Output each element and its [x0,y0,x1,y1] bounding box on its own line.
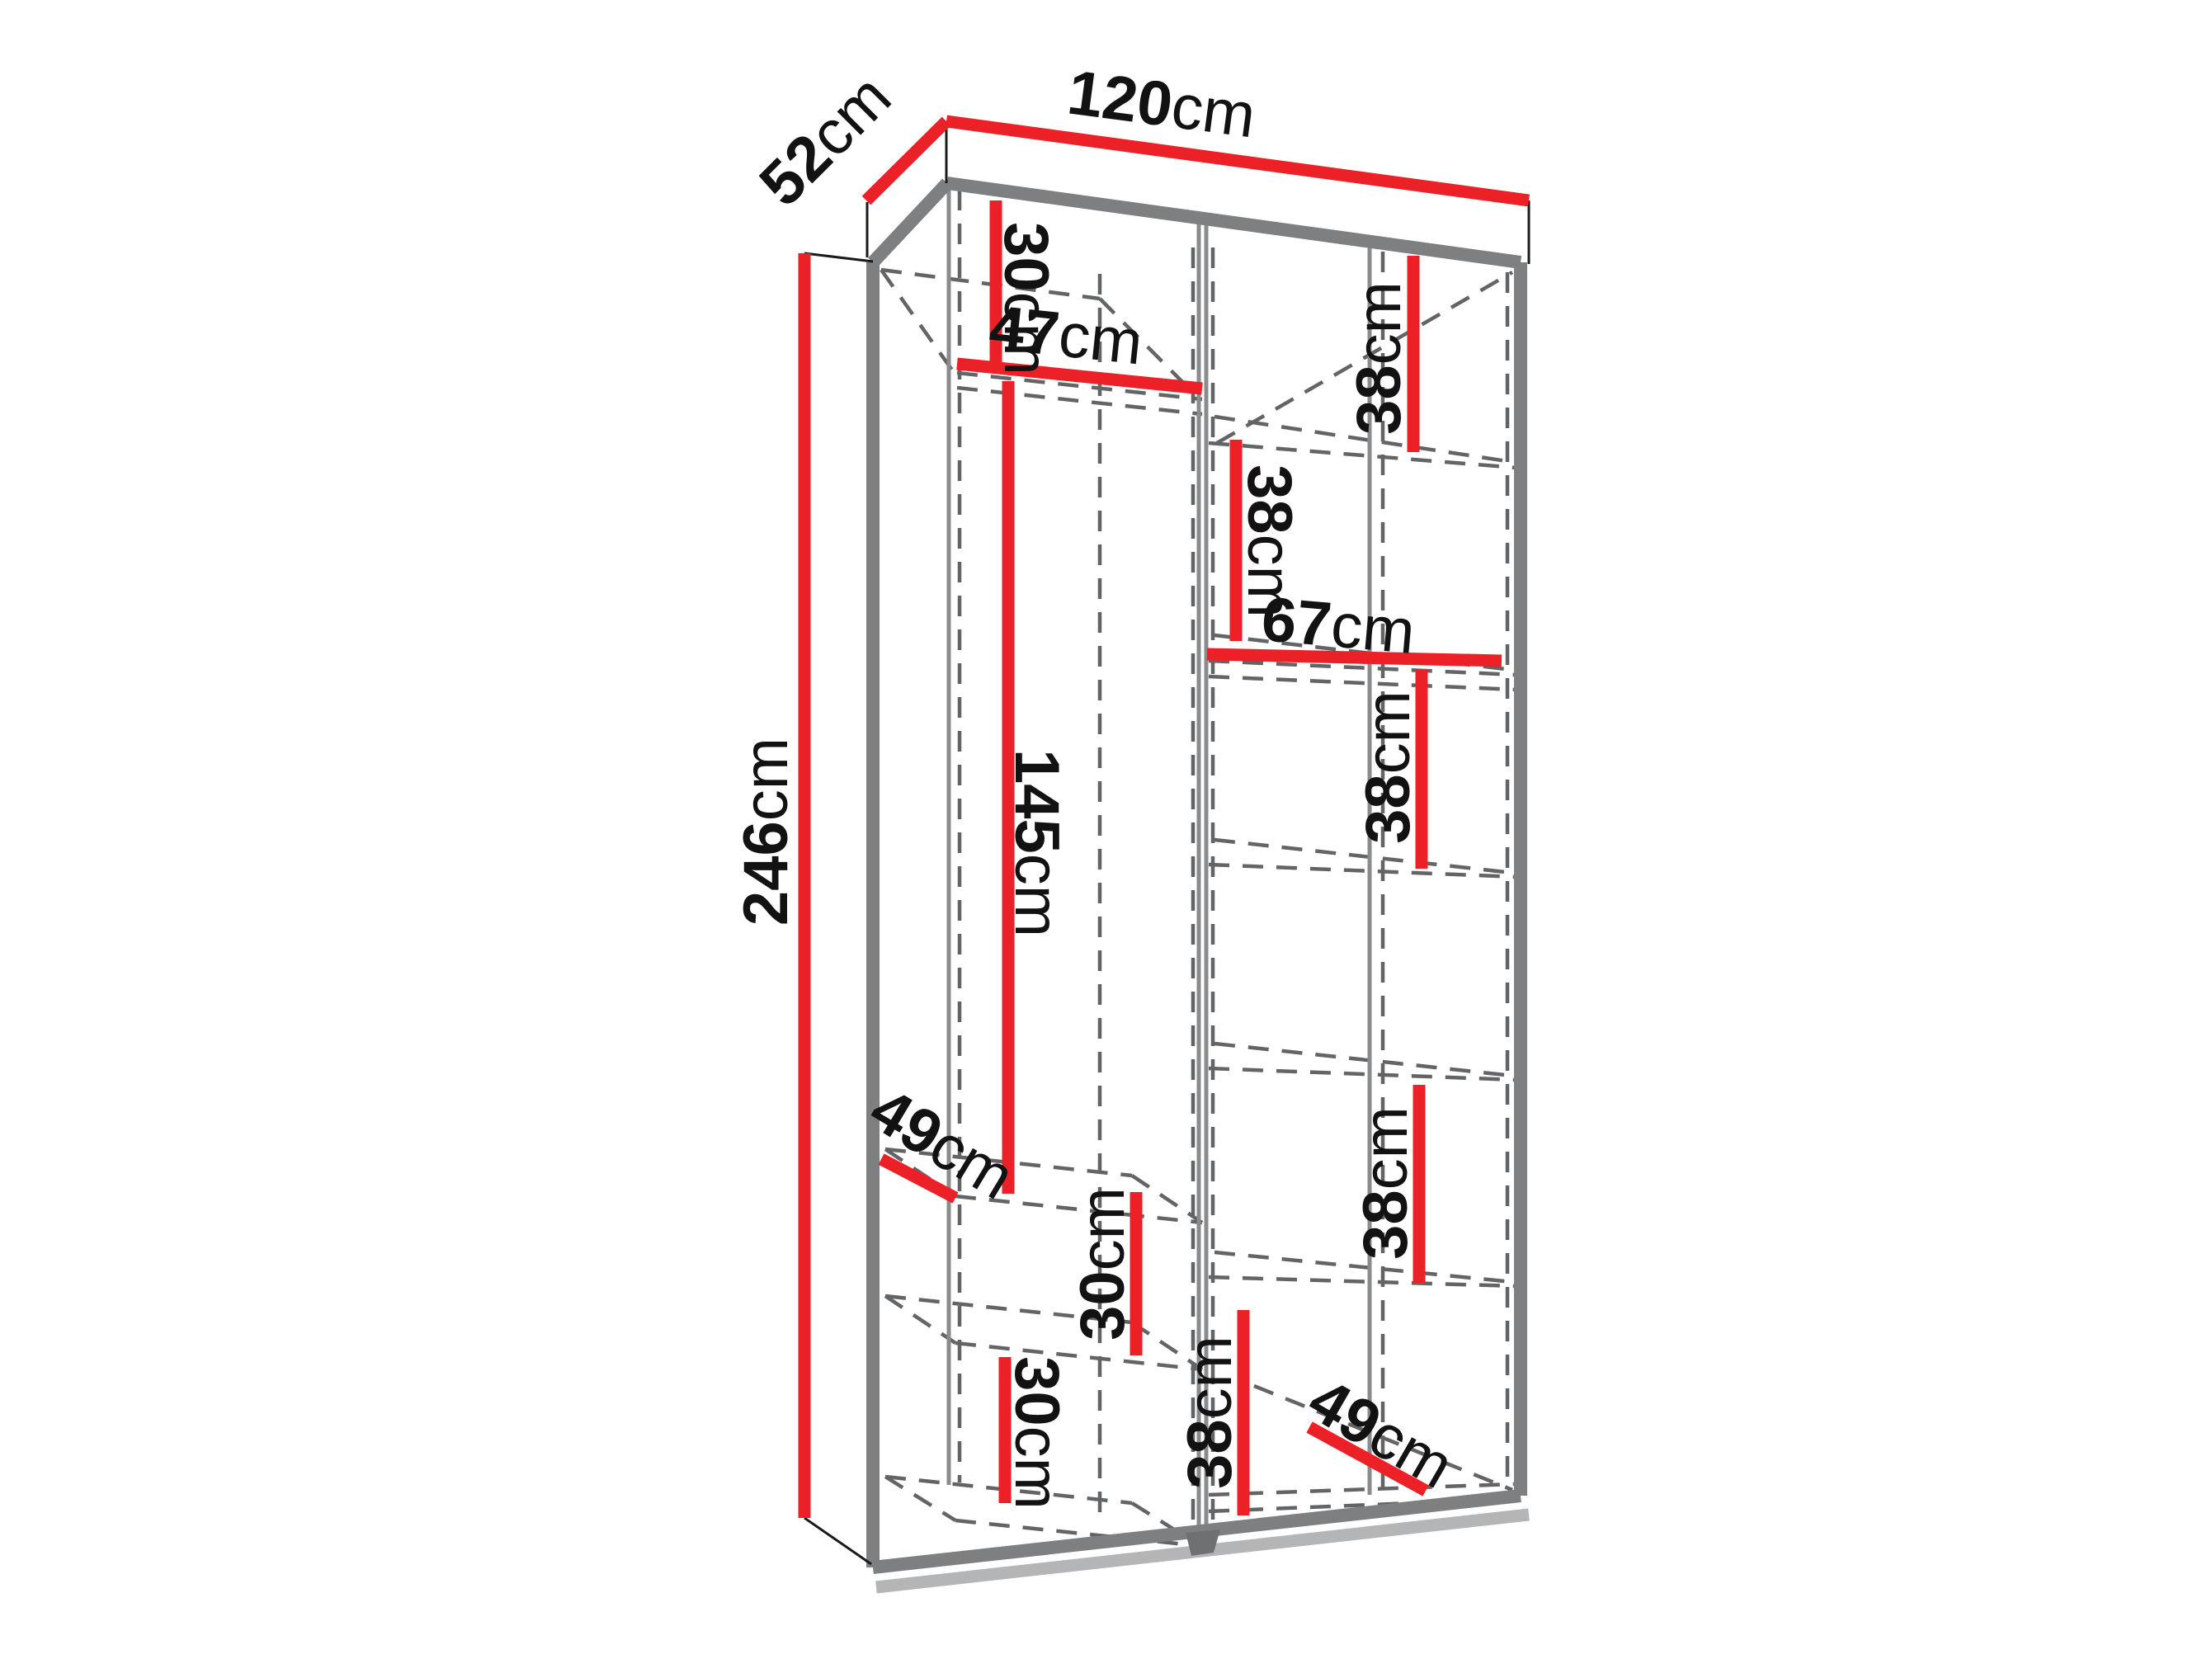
wardrobe-dimension-diagram: 120cm 52cm 246cm 30cm 47cm 145cm 38cm 38… [0,0,2212,1659]
left-shelf2-front [955,1343,1202,1369]
dim-label-left-gap-bottom: 30cm [1002,1356,1073,1510]
dimension-labels: 120cm 52cm 246cm 30cm 47cm 145cm 38cm 38… [731,57,1465,1510]
left-top-shelf-side-l [881,270,953,371]
dim-label-left-gap-mid: 30cm [1068,1187,1138,1341]
dim-label-right-gap-3: 38cm [1353,690,1423,844]
dim-label-right-gap-1: 38cm [1344,281,1414,435]
dim-label-right-shelf-width: 67cm [1259,584,1418,667]
height-ext-top [804,253,873,262]
right-shelfB-front2 [1209,676,1516,690]
dim-label-depth-top: 52cm [746,61,904,219]
dim-label-right-gap-5: 38cm [1175,1336,1245,1489]
left-top-shelf-front2 [957,388,1202,414]
dim-label-right-gap-4: 38cm [1351,1106,1421,1260]
height-ext-bottom [804,1518,871,1564]
top-left-depth-edge [873,183,947,262]
dim-label-hanging-height: 145cm [1002,749,1073,937]
right-bottom-front1 [1209,1484,1514,1495]
dim-label-height-left: 246cm [731,738,801,926]
left-shelf2-side-l [885,1296,955,1343]
diagram-canvas: 120cm 52cm 246cm 30cm 47cm 145cm 38cm 38… [0,0,2212,1659]
left-bottom-side-l [885,1477,955,1520]
